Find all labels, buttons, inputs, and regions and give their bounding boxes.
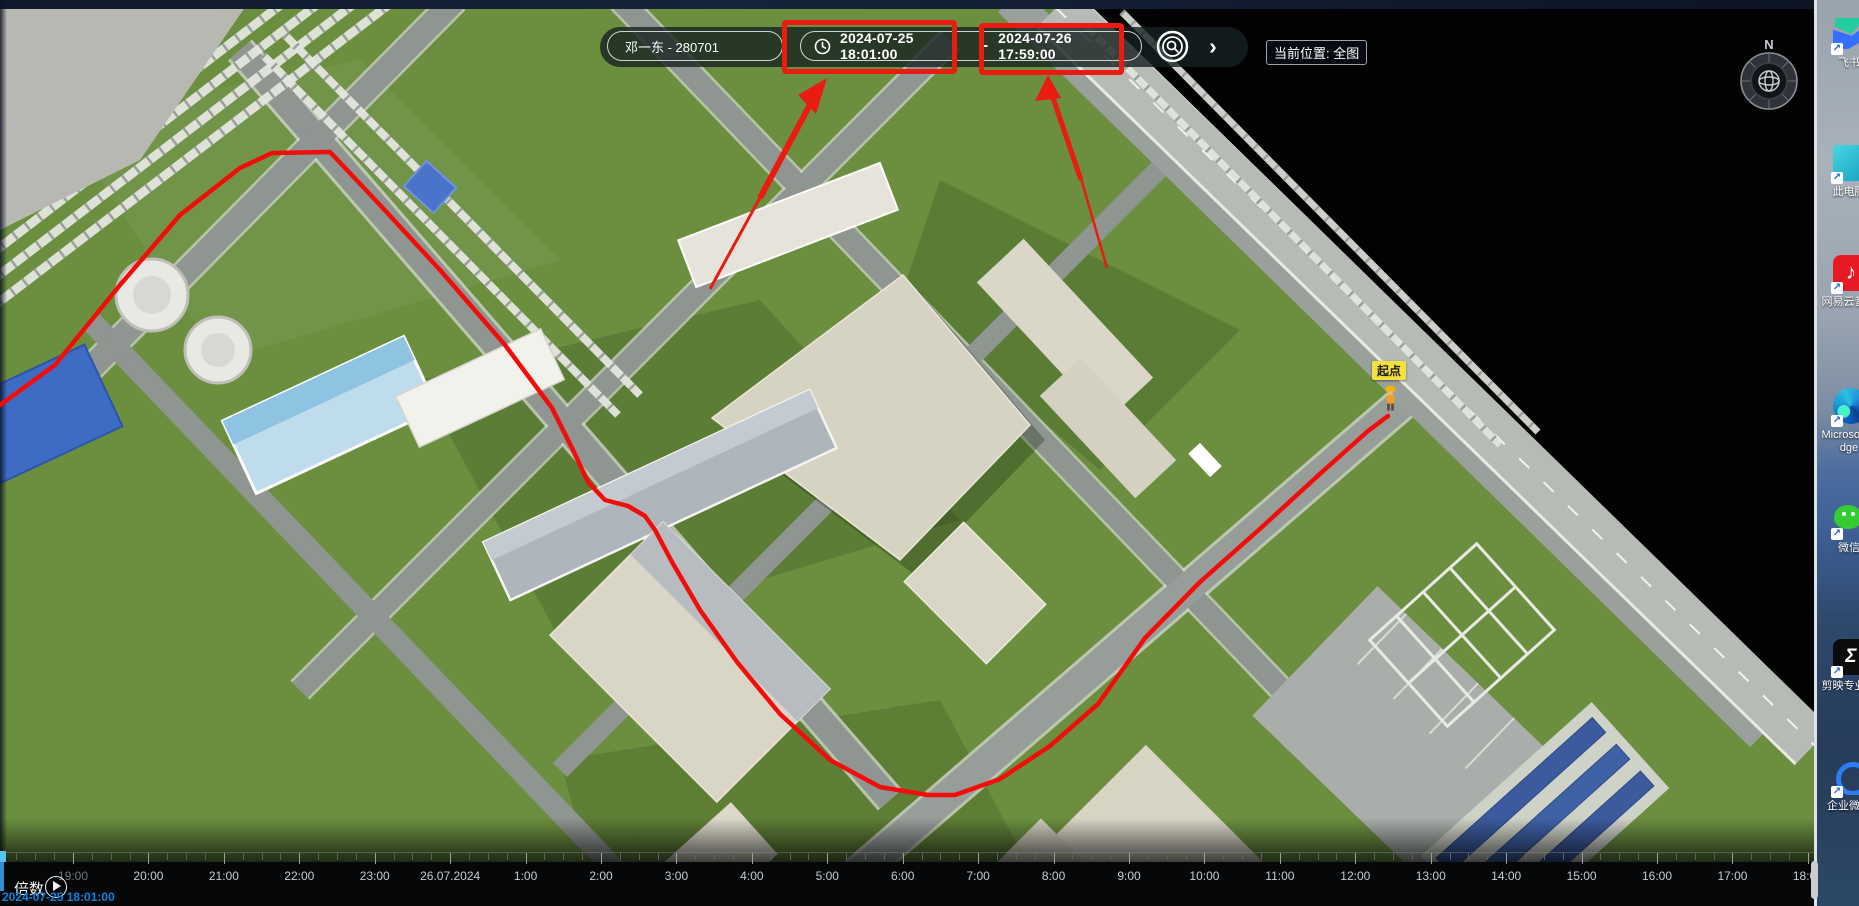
hour-tick bbox=[752, 853, 753, 864]
quarter-tick bbox=[1261, 853, 1262, 860]
desktop-icon-microsoft-edge[interactable]: ↗Microsoft Edge bbox=[1833, 388, 1859, 455]
timeline-label: 15:00 bbox=[1567, 869, 1597, 883]
timeline-label: 9:00 bbox=[1117, 869, 1140, 883]
quarter-tick bbox=[186, 853, 187, 860]
desktop-icon-feishu[interactable]: ↗飞书 bbox=[1833, 16, 1859, 70]
quarter-tick bbox=[733, 853, 734, 860]
shortcut-arrow-icon: ↗ bbox=[1831, 172, 1843, 184]
hour-tick bbox=[1431, 853, 1432, 864]
quarter-tick bbox=[884, 853, 885, 860]
hour-tick bbox=[375, 853, 376, 864]
timeline-label: 11:00 bbox=[1265, 869, 1294, 883]
quarter-tick bbox=[1638, 853, 1639, 860]
quarter-tick bbox=[658, 853, 659, 860]
timeline-label: 16:00 bbox=[1642, 869, 1672, 883]
shortcut-arrow-icon: ↗ bbox=[1831, 43, 1843, 55]
hour-tick bbox=[1355, 853, 1356, 864]
quarter-tick bbox=[1600, 853, 1601, 860]
timeline-label: 21:00 bbox=[209, 869, 239, 883]
desktop-icon-label: 此电脑 bbox=[1819, 186, 1859, 199]
desktop-icon-netease-cloud-music[interactable]: ♪↗网易云音乐 bbox=[1833, 255, 1859, 309]
quarter-tick bbox=[790, 853, 791, 860]
quarter-tick bbox=[1110, 853, 1111, 860]
start-point-label: 起点 bbox=[1372, 361, 1406, 380]
quarter-tick bbox=[714, 853, 715, 860]
windows-desktop-strip: ↗飞书↗此电脑♪↗网易云音乐↗Microsoft Edge↗微信Σ↗剪映专业版↗… bbox=[1814, 0, 1859, 906]
quarter-tick bbox=[54, 853, 55, 860]
quarter-tick bbox=[1770, 853, 1771, 860]
annotation-box-end-time bbox=[979, 23, 1124, 75]
quarter-tick bbox=[620, 853, 621, 860]
quarter-tick bbox=[1676, 853, 1677, 860]
timeline-label: 1:00 bbox=[514, 869, 537, 883]
person-select[interactable]: 邓一东 - 280701 bbox=[607, 31, 783, 61]
timeline-label: 13:00 bbox=[1416, 869, 1446, 883]
chevron-right-icon: › bbox=[1209, 33, 1217, 60]
timeline-label: 14:00 bbox=[1491, 869, 1521, 883]
scrollbar-thumb[interactable] bbox=[1811, 861, 1818, 899]
quarter-tick bbox=[1016, 853, 1017, 860]
quarter-tick bbox=[922, 853, 923, 860]
quarter-tick bbox=[1035, 853, 1036, 860]
shortcut-arrow-icon: ↗ bbox=[1831, 282, 1843, 294]
quarter-tick bbox=[771, 853, 772, 860]
shortcut-arrow-icon: ↗ bbox=[1831, 415, 1843, 427]
desktop-icon-label: 微信 bbox=[1819, 542, 1859, 555]
hour-tick bbox=[1582, 853, 1583, 864]
timeline-axis bbox=[0, 852, 1814, 853]
current-location-label: 当前位置: 全图 bbox=[1266, 40, 1367, 65]
annotation-arrow-1 bbox=[710, 78, 827, 289]
quarter-tick bbox=[1468, 853, 1469, 860]
route-overlay bbox=[0, 0, 1814, 906]
quarter-tick bbox=[205, 853, 206, 860]
quarter-tick bbox=[1186, 853, 1187, 860]
quarter-tick bbox=[1563, 853, 1564, 860]
hour-tick bbox=[1657, 853, 1658, 864]
play-forward-button[interactable]: › bbox=[1198, 31, 1228, 61]
timeline-label: 2:00 bbox=[589, 869, 612, 883]
timeline-label: 23:00 bbox=[360, 869, 390, 883]
map-viewport[interactable]: 邓一东 - 280701 2024-07-25 18:01:00 - 2024-… bbox=[0, 0, 1814, 906]
quarter-tick bbox=[1751, 853, 1752, 860]
hour-tick bbox=[903, 853, 904, 864]
quarter-tick bbox=[1487, 853, 1488, 860]
locate-button[interactable] bbox=[1156, 30, 1189, 63]
screen: 邓一东 - 280701 2024-07-25 18:01:00 - 2024-… bbox=[0, 0, 1859, 906]
timeline-label: 22:00 bbox=[284, 869, 314, 883]
quarter-tick bbox=[356, 853, 357, 860]
quarter-tick bbox=[846, 853, 847, 860]
hour-tick bbox=[676, 853, 677, 864]
track-route-line bbox=[0, 152, 1388, 795]
person-select-value: 邓一东 - 280701 bbox=[625, 37, 719, 56]
quarter-tick bbox=[1318, 853, 1319, 860]
quarter-tick bbox=[1167, 853, 1168, 860]
quarter-tick bbox=[695, 853, 696, 860]
hour-tick bbox=[73, 853, 74, 864]
quarter-tick bbox=[1336, 853, 1337, 860]
quarter-tick bbox=[507, 853, 508, 860]
timeline-label: 17:00 bbox=[1717, 869, 1747, 883]
quarter-tick bbox=[808, 853, 809, 860]
compass-control[interactable]: N bbox=[1734, 38, 1804, 104]
timeline-playhead[interactable] bbox=[0, 851, 4, 891]
hour-tick bbox=[978, 853, 979, 864]
annotation-box-start-time bbox=[782, 20, 957, 74]
hour-tick bbox=[1732, 853, 1733, 864]
hour-tick bbox=[1054, 853, 1055, 864]
hour-tick bbox=[1204, 853, 1205, 864]
timeline-label: 7:00 bbox=[966, 869, 989, 883]
quarter-tick bbox=[1525, 853, 1526, 860]
quarter-tick bbox=[111, 853, 112, 860]
quarter-tick bbox=[940, 853, 941, 860]
compass-dial[interactable] bbox=[1738, 50, 1800, 112]
quarter-tick bbox=[1072, 853, 1073, 860]
quarter-tick bbox=[1148, 853, 1149, 860]
timeline-label: 3:00 bbox=[665, 869, 688, 883]
desktop-icon-label: Microsoft Edge bbox=[1819, 429, 1859, 455]
quarter-tick bbox=[1789, 853, 1790, 860]
hour-tick bbox=[1506, 853, 1507, 864]
desktop-icon-wechat[interactable]: ↗微信 bbox=[1833, 501, 1859, 555]
desktop-icon-label: 企业微信 bbox=[1819, 800, 1859, 813]
worker-figure-icon bbox=[1383, 385, 1398, 417]
shortcut-arrow-icon: ↗ bbox=[1831, 666, 1843, 678]
quarter-tick bbox=[1695, 853, 1696, 860]
start-point-marker[interactable]: 起点 bbox=[1372, 361, 1406, 380]
quarter-tick bbox=[262, 853, 263, 860]
hour-tick bbox=[827, 853, 828, 864]
hour-tick bbox=[1280, 853, 1281, 864]
window-edge-divider bbox=[1814, 0, 1817, 906]
quarter-tick bbox=[394, 853, 395, 860]
quarter-tick bbox=[1714, 853, 1715, 860]
hour-tick bbox=[299, 853, 300, 864]
desktop-icon-label: 网易云音乐 bbox=[1819, 296, 1859, 309]
timeline-label: 4:00 bbox=[740, 869, 763, 883]
quarter-tick bbox=[563, 853, 564, 860]
quarter-tick bbox=[130, 853, 131, 860]
shortcut-arrow-icon: ↗ bbox=[1831, 528, 1843, 540]
hour-tick bbox=[148, 853, 149, 864]
quarter-tick bbox=[1544, 853, 1545, 860]
timeline-label: 26.07.2024 bbox=[420, 869, 480, 883]
quarter-tick bbox=[865, 853, 866, 860]
quarter-tick bbox=[488, 853, 489, 860]
hour-tick bbox=[601, 853, 602, 864]
quarter-tick bbox=[412, 853, 413, 860]
current-location-value: 当前位置: 全图 bbox=[1274, 46, 1359, 61]
quarter-tick bbox=[92, 853, 93, 860]
hour-tick bbox=[526, 853, 527, 864]
desktop-icon-wecom[interactable]: ↗企业微信 bbox=[1833, 759, 1859, 813]
timeline-label: 12:00 bbox=[1340, 869, 1370, 883]
desktop-icon-label: 飞书 bbox=[1819, 57, 1859, 70]
quarter-tick bbox=[431, 853, 432, 860]
quarter-tick bbox=[582, 853, 583, 860]
timeline-label: 8:00 bbox=[1042, 869, 1065, 883]
quarter-tick bbox=[280, 853, 281, 860]
quarter-tick bbox=[639, 853, 640, 860]
quarter-tick bbox=[997, 853, 998, 860]
timeline-label: 6:00 bbox=[891, 869, 914, 883]
current-time-value: 2024-07-25 18:01:00 bbox=[2, 890, 115, 904]
quarter-tick bbox=[1223, 853, 1224, 860]
quarter-tick bbox=[1242, 853, 1243, 860]
desktop-icon-this-pc[interactable]: ↗此电脑 bbox=[1833, 145, 1859, 199]
quarter-tick bbox=[1374, 853, 1375, 860]
timeline-scrubber[interactable]: 19:0020:0021:0022:0023:0026.07.20241:002… bbox=[0, 845, 1814, 906]
quarter-tick bbox=[1299, 853, 1300, 860]
quarter-tick bbox=[1412, 853, 1413, 860]
quarter-tick bbox=[318, 853, 319, 860]
annotation-arrow-2 bbox=[1035, 75, 1107, 268]
hour-tick bbox=[1129, 853, 1130, 864]
shortcut-arrow-icon: ↗ bbox=[1831, 786, 1843, 798]
quarter-tick bbox=[35, 853, 36, 860]
timeline-label: 10:00 bbox=[1189, 869, 1219, 883]
quarter-tick bbox=[167, 853, 168, 860]
quarter-tick bbox=[1393, 853, 1394, 860]
quarter-tick bbox=[1091, 853, 1092, 860]
desktop-icon-label: 剪映专业版 bbox=[1819, 680, 1859, 693]
quarter-tick bbox=[16, 853, 17, 860]
locate-icon bbox=[1156, 30, 1189, 63]
quarter-tick bbox=[959, 853, 960, 860]
timeline-label: 20:00 bbox=[133, 869, 163, 883]
quarter-tick bbox=[469, 853, 470, 860]
hour-tick bbox=[450, 853, 451, 864]
quarter-tick bbox=[337, 853, 338, 860]
quarter-tick bbox=[1450, 853, 1451, 860]
quarter-tick bbox=[1619, 853, 1620, 860]
quarter-tick bbox=[243, 853, 244, 860]
timeline-label: 5:00 bbox=[816, 869, 839, 883]
hour-tick bbox=[1808, 853, 1809, 864]
desktop-icon-capcut[interactable]: Σ↗剪映专业版 bbox=[1833, 639, 1859, 693]
hour-tick bbox=[224, 853, 225, 864]
quarter-tick bbox=[544, 853, 545, 860]
